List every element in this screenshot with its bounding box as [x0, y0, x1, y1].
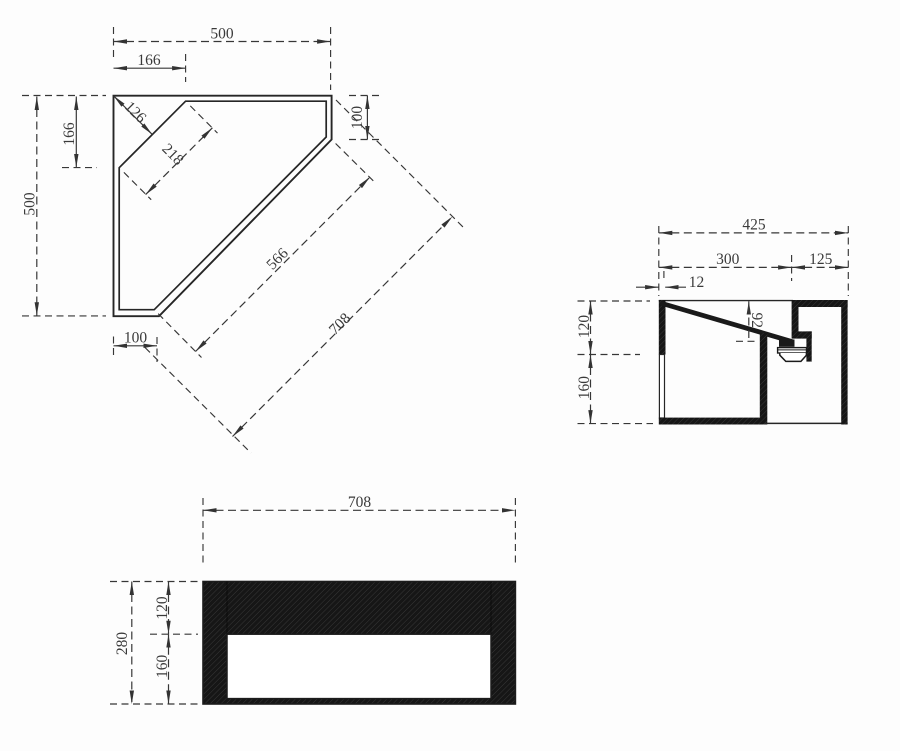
svg-text:166: 166 — [61, 122, 78, 146]
svg-text:425: 425 — [742, 217, 766, 234]
svg-text:160: 160 — [154, 655, 171, 679]
svg-text:120: 120 — [154, 596, 171, 620]
svg-text:300: 300 — [716, 251, 740, 268]
svg-text:100: 100 — [349, 106, 366, 130]
svg-text:500: 500 — [22, 192, 39, 216]
svg-text:100: 100 — [124, 329, 148, 346]
svg-text:120: 120 — [576, 315, 593, 339]
svg-text:500: 500 — [210, 26, 234, 43]
svg-text:12: 12 — [689, 274, 705, 291]
svg-text:125: 125 — [809, 251, 833, 268]
svg-text:166: 166 — [137, 52, 161, 69]
svg-text:280: 280 — [114, 632, 131, 656]
svg-text:92: 92 — [748, 313, 765, 329]
svg-text:160: 160 — [576, 376, 593, 400]
svg-text:708: 708 — [348, 494, 372, 511]
